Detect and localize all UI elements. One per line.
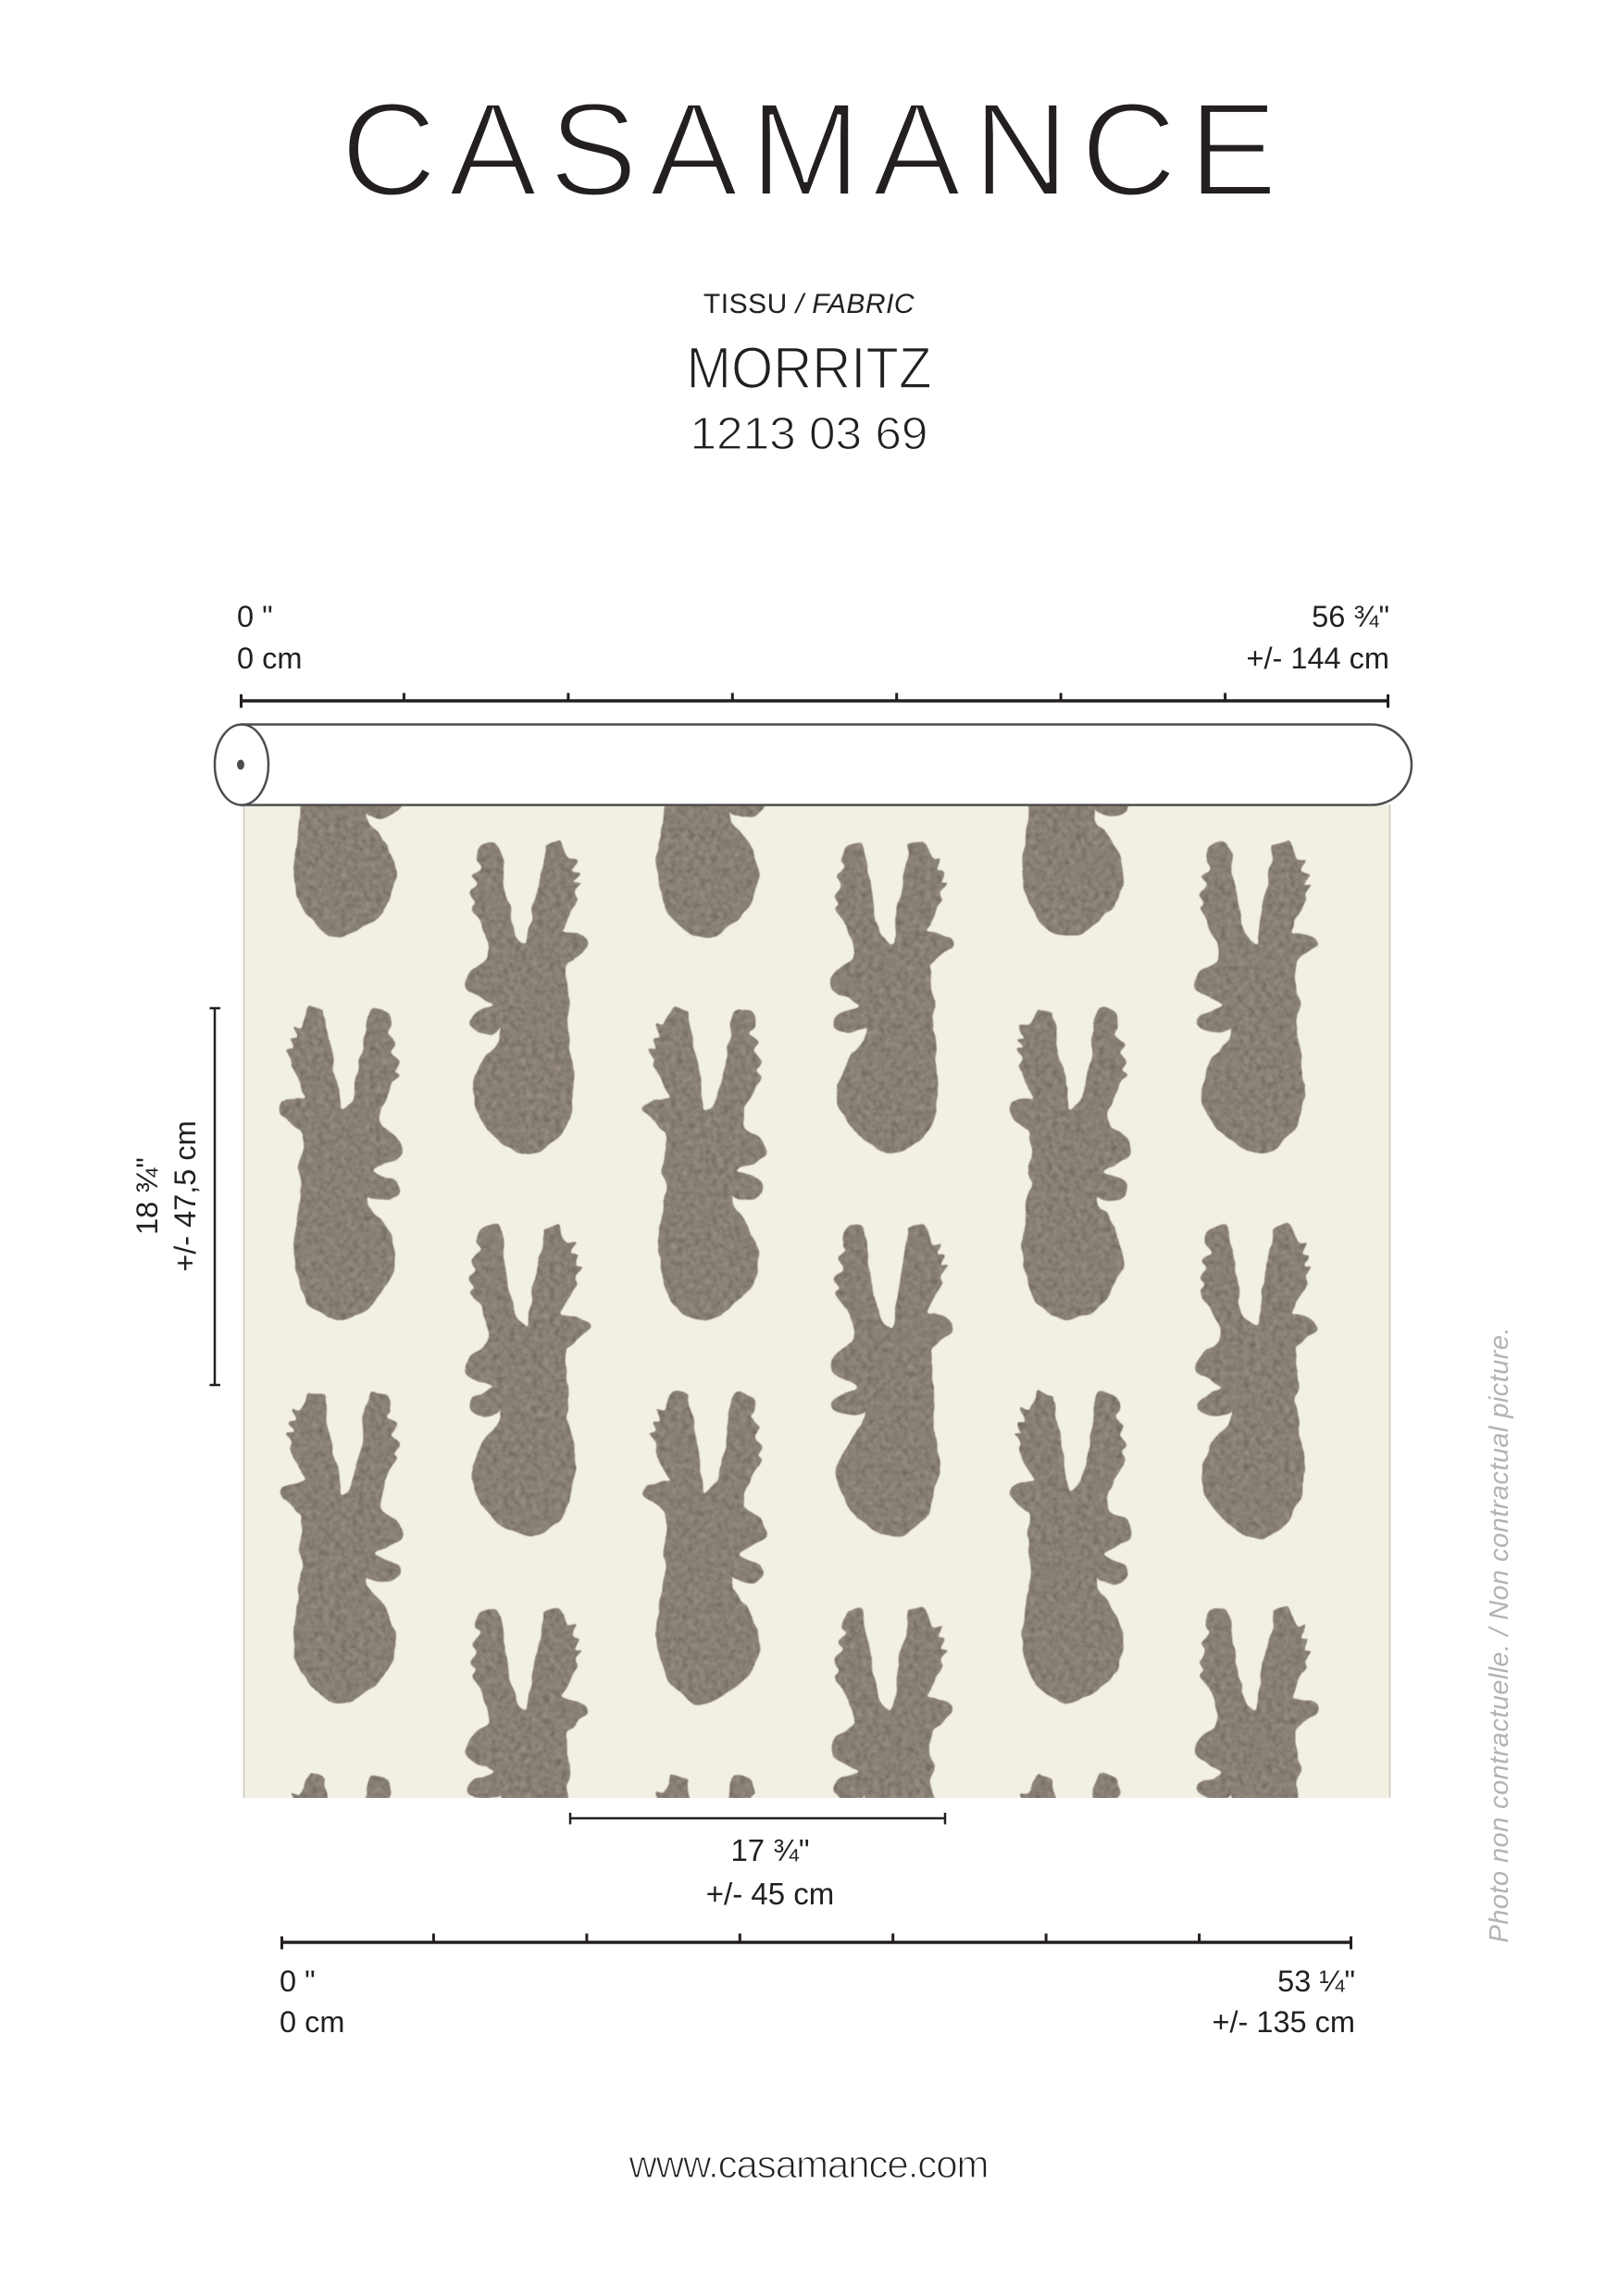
svg-text:TISSU / FABRIC: TISSU / FABRIC	[703, 289, 915, 319]
svg-text:17 ¾": 17 ¾"	[730, 1833, 809, 1867]
svg-text:18 ¾": 18 ¾"	[131, 1157, 164, 1235]
svg-text:+/- 135 cm: +/- 135 cm	[1213, 2005, 1355, 2039]
svg-text:+/- 45 cm: +/- 45 cm	[706, 1877, 834, 1911]
svg-text:0 cm: 0 cm	[237, 642, 302, 675]
svg-text:0 cm: 0 cm	[280, 2005, 344, 2039]
svg-text:www.casamance.com: www.casamance.com	[629, 2142, 989, 2186]
svg-text:56 ¾": 56 ¾"	[1312, 600, 1389, 633]
svg-text:+/- 47,5 cm: +/- 47,5 cm	[168, 1120, 202, 1271]
svg-text:1213 03 69: 1213 03 69	[691, 409, 928, 459]
svg-text:0 ": 0 "	[237, 600, 273, 633]
svg-text:MORRITZ: MORRITZ	[687, 336, 932, 401]
svg-text:0 ": 0 "	[280, 1965, 316, 1998]
svg-text:+/- 144 cm: +/- 144 cm	[1247, 642, 1389, 675]
svg-text:Photo non contractuelle. / Non: Photo non contractuelle. / Non contractu…	[1485, 1328, 1514, 1943]
svg-text:53 ¼": 53 ¼"	[1277, 1965, 1355, 1998]
svg-text:CASAMANCE: CASAMANCE	[341, 75, 1277, 224]
